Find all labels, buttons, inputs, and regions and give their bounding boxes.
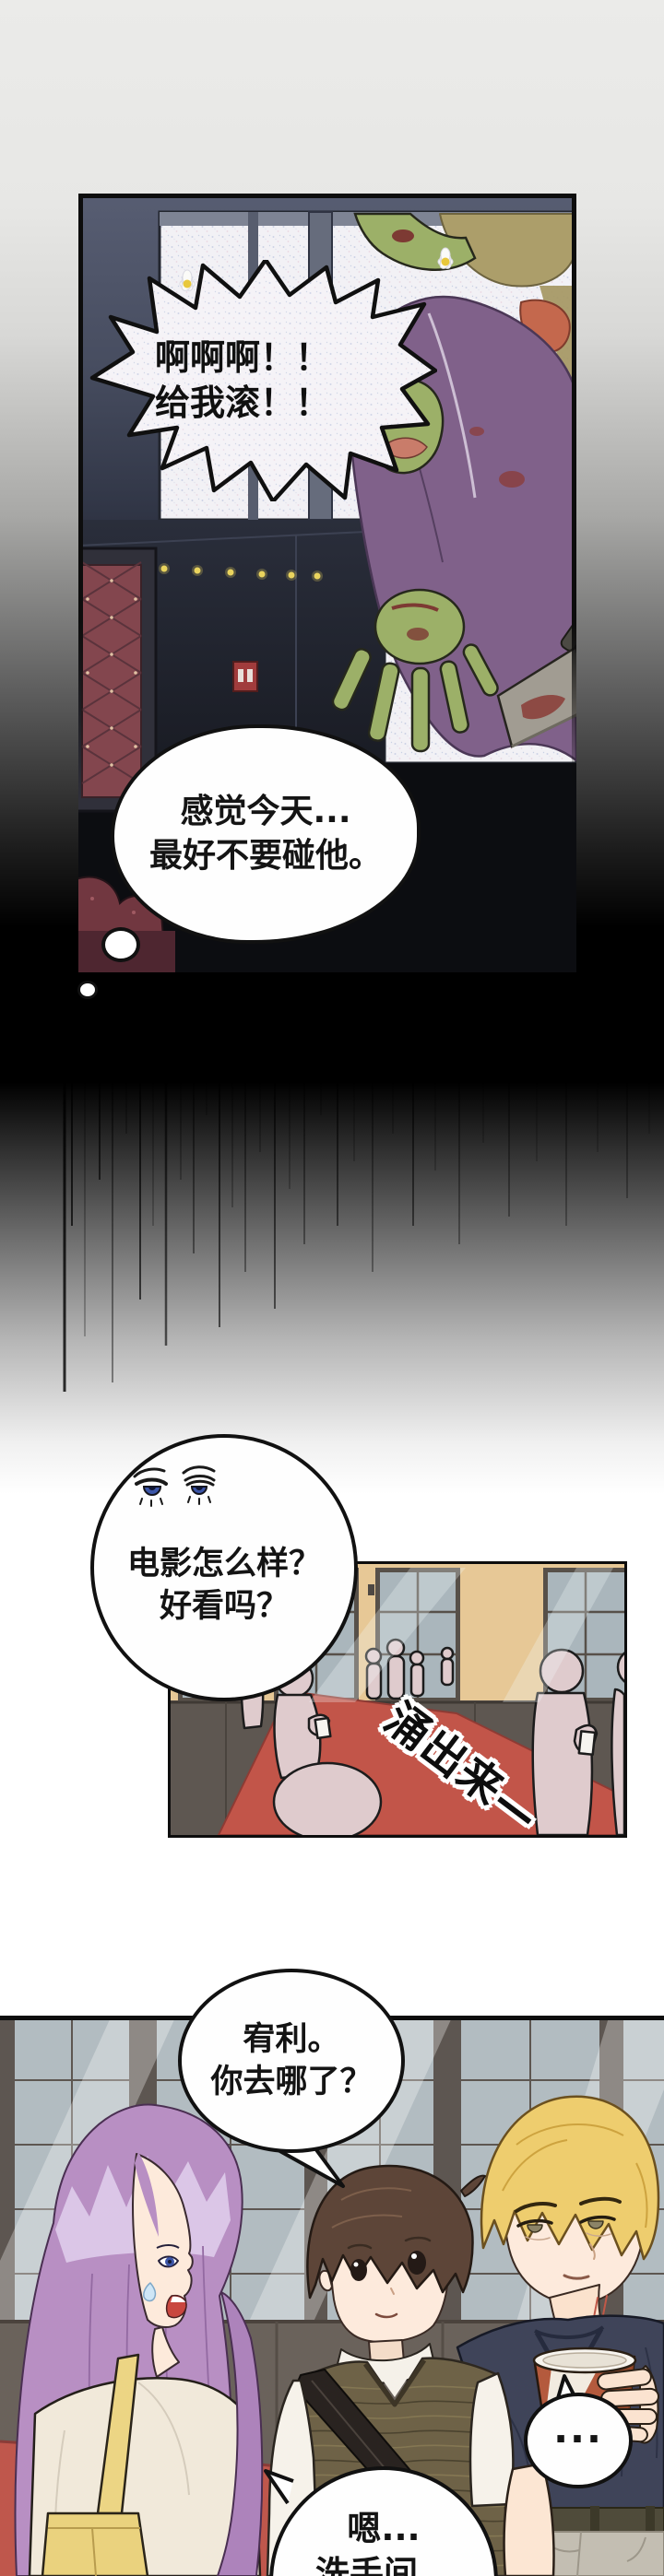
ellipsis-text: ... [553, 2404, 603, 2454]
thought-trail-dot [101, 927, 140, 962]
ask-line-2: 你去哪了？ [210, 2061, 372, 2103]
scream-bubble: 啊啊啊！！ 给我滚！！ [85, 260, 437, 501]
ellipsis-bubble: ... [524, 2393, 633, 2488]
question-line-2: 好看吗？ [160, 1585, 289, 1628]
answer-line-2: 洗手间。 [315, 2552, 452, 2576]
answer-line-1: 嗯... [347, 2507, 420, 2552]
thought-line-1: 感觉今天... [180, 790, 350, 834]
webtoon-page: 啊啊啊！！ 给我滚！！ 感觉今天... 最好不要碰他。 [0, 0, 664, 2576]
speed-lines [0, 949, 664, 1447]
ask-line-1: 宥利。 [243, 2018, 339, 2061]
thought-trail-dot [77, 981, 98, 999]
scream-line-1: 啊啊啊！！ [155, 335, 330, 381]
exit-sign [233, 662, 257, 691]
thought-line-2: 最好不要碰他。 [149, 834, 382, 878]
tired-eyes-icon [133, 1462, 225, 1513]
question-bubble: 电影怎么样？ 好看吗？ [90, 1434, 358, 1701]
question-line-1: 电影怎么样？ [127, 1543, 321, 1585]
scream-line-2: 给我滚！！ [155, 381, 330, 426]
ask-bubble: 宥利。 你去哪了？ [178, 1969, 405, 2153]
